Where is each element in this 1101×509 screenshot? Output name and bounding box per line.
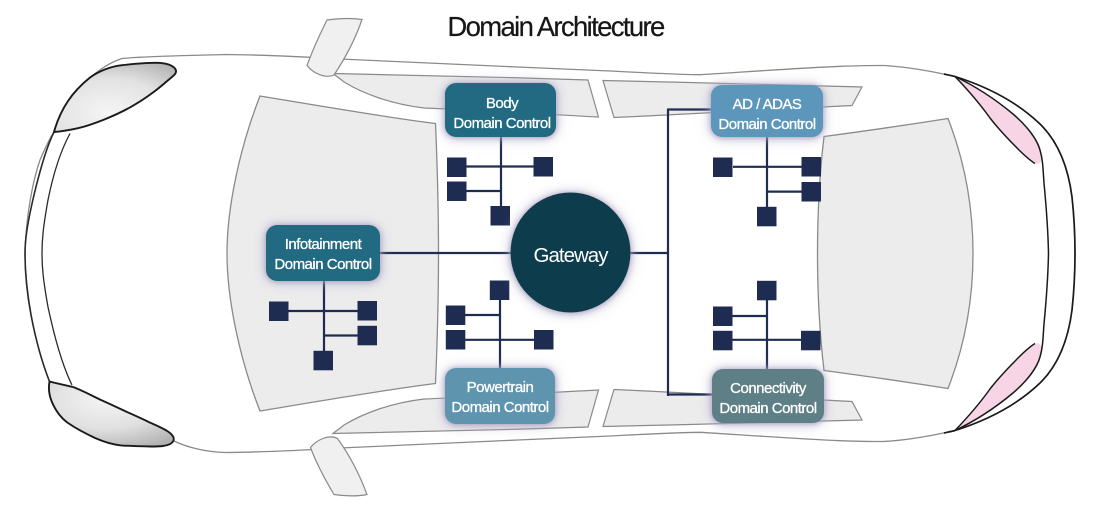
svg-text:Domain Control: Domain Control [719, 400, 816, 417]
svg-text:Infotainment: Infotainment [285, 236, 363, 253]
svg-text:Domain Control: Domain Control [451, 399, 548, 416]
svg-text:AD / ADAS: AD / ADAS [733, 96, 802, 113]
svg-text:Domain Control: Domain Control [274, 256, 371, 273]
svg-text:Body: Body [486, 95, 519, 112]
svg-text:Domain Control: Domain Control [453, 115, 550, 132]
svg-text:Connectivity: Connectivity [730, 380, 807, 397]
svg-text:Domain Architecture: Domain Architecture [447, 11, 665, 42]
svg-text:Powertrain: Powertrain [467, 379, 534, 396]
svg-text:Domain Control: Domain Control [718, 116, 815, 133]
svg-text:Gateway: Gateway [534, 244, 610, 267]
